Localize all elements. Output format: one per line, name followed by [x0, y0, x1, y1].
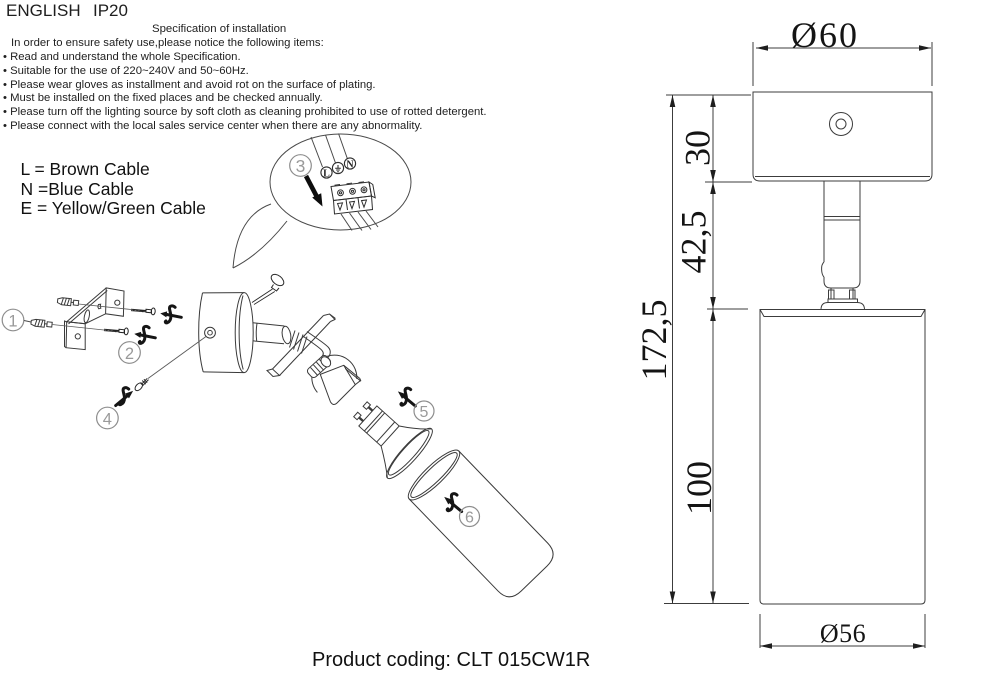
- svg-text:Specification of installation: Specification of installation: [152, 23, 286, 35]
- svg-text:• Please wear gloves as instal: • Please wear gloves as installment and …: [3, 79, 376, 91]
- svg-text:30: 30: [678, 130, 718, 166]
- svg-text:• Read and understand the whol: • Read and understand the whole Specific…: [3, 51, 241, 63]
- svg-text:Ø56: Ø56: [820, 619, 866, 648]
- svg-text:3: 3: [296, 156, 306, 176]
- svg-text:L: L: [323, 169, 330, 180]
- svg-text:42,5: 42,5: [674, 211, 714, 274]
- svg-text:Product coding: CLT 015CW1R: Product coding: CLT 015CW1R: [312, 649, 590, 671]
- svg-text:4: 4: [103, 410, 112, 428]
- svg-text:6: 6: [465, 510, 474, 527]
- svg-text:IP20: IP20: [93, 1, 128, 20]
- svg-text:2: 2: [125, 345, 134, 363]
- svg-text:ENGLISH: ENGLISH: [6, 1, 81, 20]
- svg-text:1: 1: [8, 312, 17, 330]
- svg-text:E = Yellow/Green Cable: E = Yellow/Green Cable: [21, 198, 206, 218]
- svg-text:In order to ensure safety use,: In order to ensure safety use,please not…: [11, 37, 324, 49]
- svg-text:Ø60: Ø60: [791, 15, 859, 55]
- svg-text:100: 100: [679, 461, 719, 515]
- svg-text:N: N: [346, 160, 354, 171]
- svg-text:• Please turn off the lighting: • Please turn off the lighting source by…: [3, 106, 487, 118]
- svg-text:• Must be installed on the fix: • Must be installed on the fixed places …: [3, 92, 323, 104]
- svg-text:5: 5: [420, 404, 429, 421]
- svg-text:• Suitable for the use of 220~: • Suitable for the use of 220~240V and 5…: [3, 65, 249, 77]
- svg-text:• Please connect with the loca: • Please connect with the local sales se…: [3, 120, 422, 132]
- svg-text:N =Blue Cable: N =Blue Cable: [21, 179, 134, 199]
- svg-text:L = Brown Cable: L = Brown Cable: [21, 159, 150, 179]
- svg-text:172,5: 172,5: [634, 300, 674, 381]
